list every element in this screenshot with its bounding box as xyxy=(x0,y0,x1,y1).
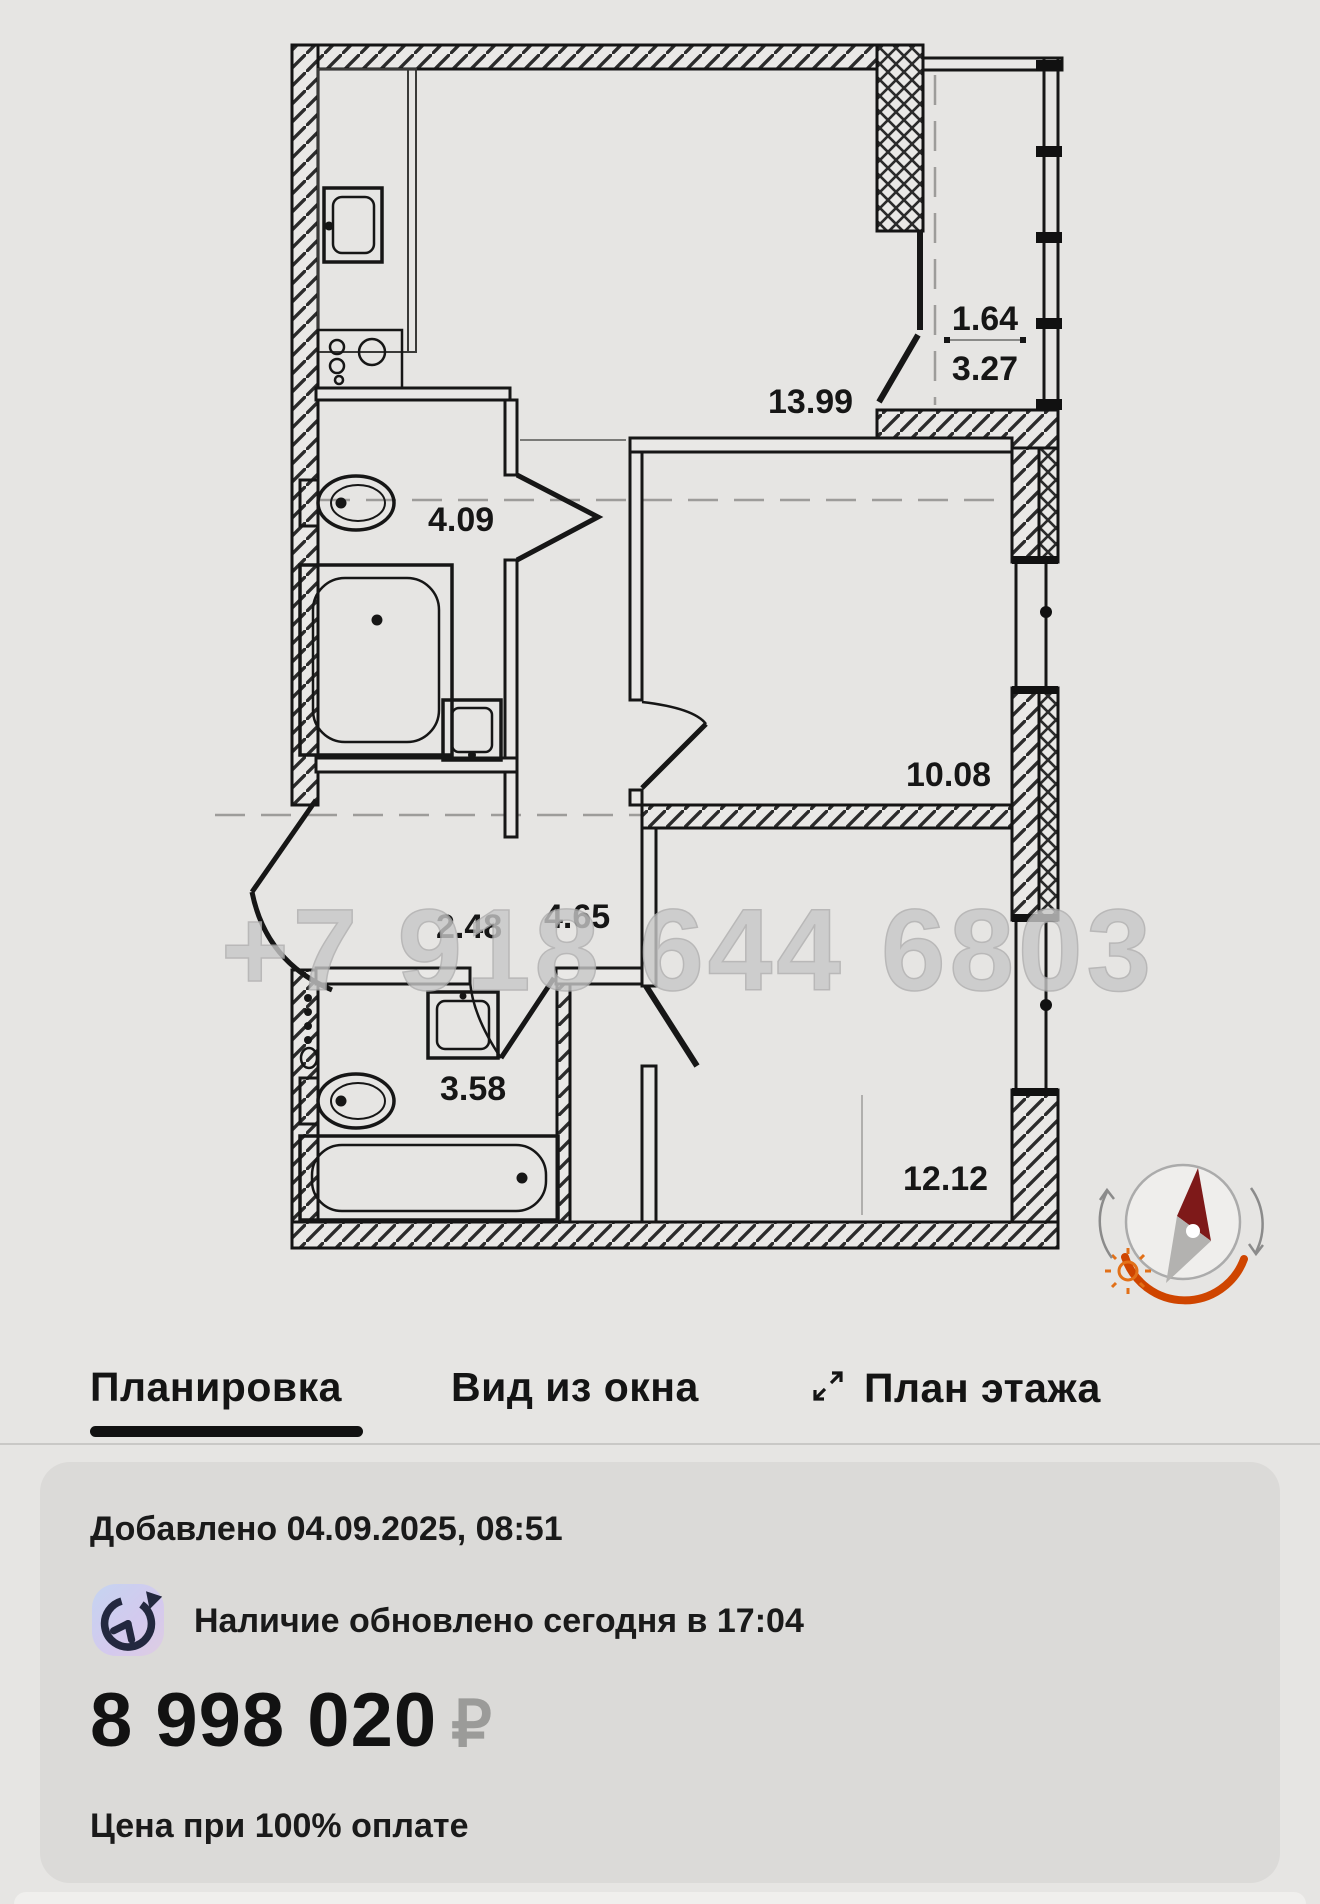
bathtub-icon xyxy=(300,565,452,755)
bedroom-window xyxy=(1012,556,1058,694)
price-note: Цена при 100% оплате xyxy=(90,1807,468,1846)
room-area-kitchen-living: 13.99 xyxy=(768,383,853,421)
tab-plan-etazha-label: План этажа xyxy=(864,1365,1101,1411)
outer-walls xyxy=(292,45,1058,1248)
room-area-bathroom-2: 3.58 xyxy=(440,1070,506,1108)
floor-plan-image: 13.99 1.64 3.27 4.09 10.08 2.48 4.65 3.5… xyxy=(0,0,1320,1340)
added-date: Добавлено 04.09.2025, 08:51 xyxy=(90,1510,563,1549)
room-area-bathroom-1: 4.09 xyxy=(428,501,494,539)
kitchen-sink-icon xyxy=(324,188,382,262)
tabs-divider xyxy=(0,1443,1320,1445)
next-card-top-edge xyxy=(14,1892,1306,1904)
room-area-balcony-top: 1.64 xyxy=(952,300,1018,338)
price-row: 8 998 020₽ xyxy=(90,1677,492,1764)
availability-updated-text: Наличие обновлено сегодня в 17:04 xyxy=(194,1602,804,1641)
compass-icon xyxy=(1100,1165,1263,1300)
room-area-bedroom: 10.08 xyxy=(906,756,991,794)
expand-icon xyxy=(806,1364,850,1418)
balcony-door xyxy=(879,231,920,402)
availability-clock-icon xyxy=(92,1584,164,1656)
tab-vid-iz-okna[interactable]: Вид из окна xyxy=(451,1364,699,1411)
bathtub-2-icon xyxy=(300,1136,558,1220)
media-tabs: Планировка Вид из окна План этажа xyxy=(0,1350,1320,1445)
watermark-phone: +7 918 644 6803 xyxy=(221,885,1155,1015)
room-area-balcony-bottom: 3.27 xyxy=(952,350,1018,388)
active-tab-underline xyxy=(90,1426,363,1437)
floor-plan-svg: 13.99 1.64 3.27 4.09 10.08 2.48 4.65 3.5… xyxy=(0,0,1320,1340)
stove-icon xyxy=(318,330,402,388)
tab-plan-etazha[interactable]: План этажа xyxy=(806,1364,1101,1418)
balcony-glazing xyxy=(1036,58,1062,410)
room-area-living-room: 12.12 xyxy=(903,1160,988,1198)
listing-info-card: Добавлено 04.09.2025, 08:51 Наличие обно… xyxy=(40,1462,1280,1883)
tab-planirovka[interactable]: Планировка xyxy=(90,1364,342,1411)
price-value: 8 998 020 xyxy=(90,1678,437,1763)
ruble-sign: ₽ xyxy=(451,1688,492,1760)
